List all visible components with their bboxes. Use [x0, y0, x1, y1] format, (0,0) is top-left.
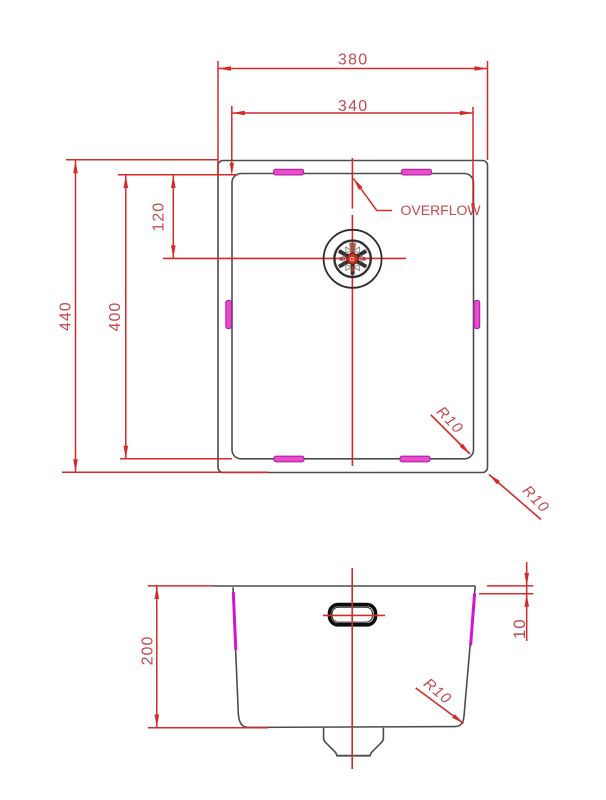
svg-text:400: 400 — [107, 302, 124, 332]
svg-text:440: 440 — [58, 301, 75, 331]
svg-text:200: 200 — [140, 636, 157, 666]
svg-text:10: 10 — [510, 618, 529, 639]
svg-text:120: 120 — [151, 202, 168, 232]
svg-text:380: 380 — [338, 52, 369, 69]
svg-text:OVERFLOW: OVERFLOW — [401, 202, 482, 218]
svg-text:340: 340 — [338, 98, 369, 115]
